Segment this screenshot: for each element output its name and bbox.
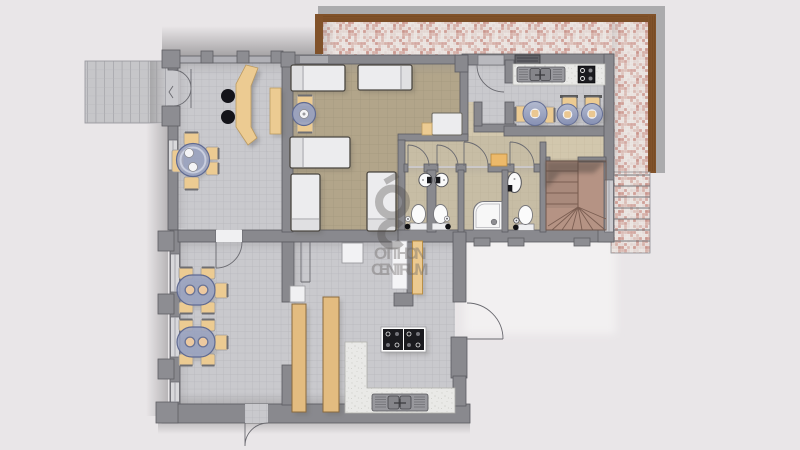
svg-text:CENTRUM: CENTRUM [371,260,429,279]
